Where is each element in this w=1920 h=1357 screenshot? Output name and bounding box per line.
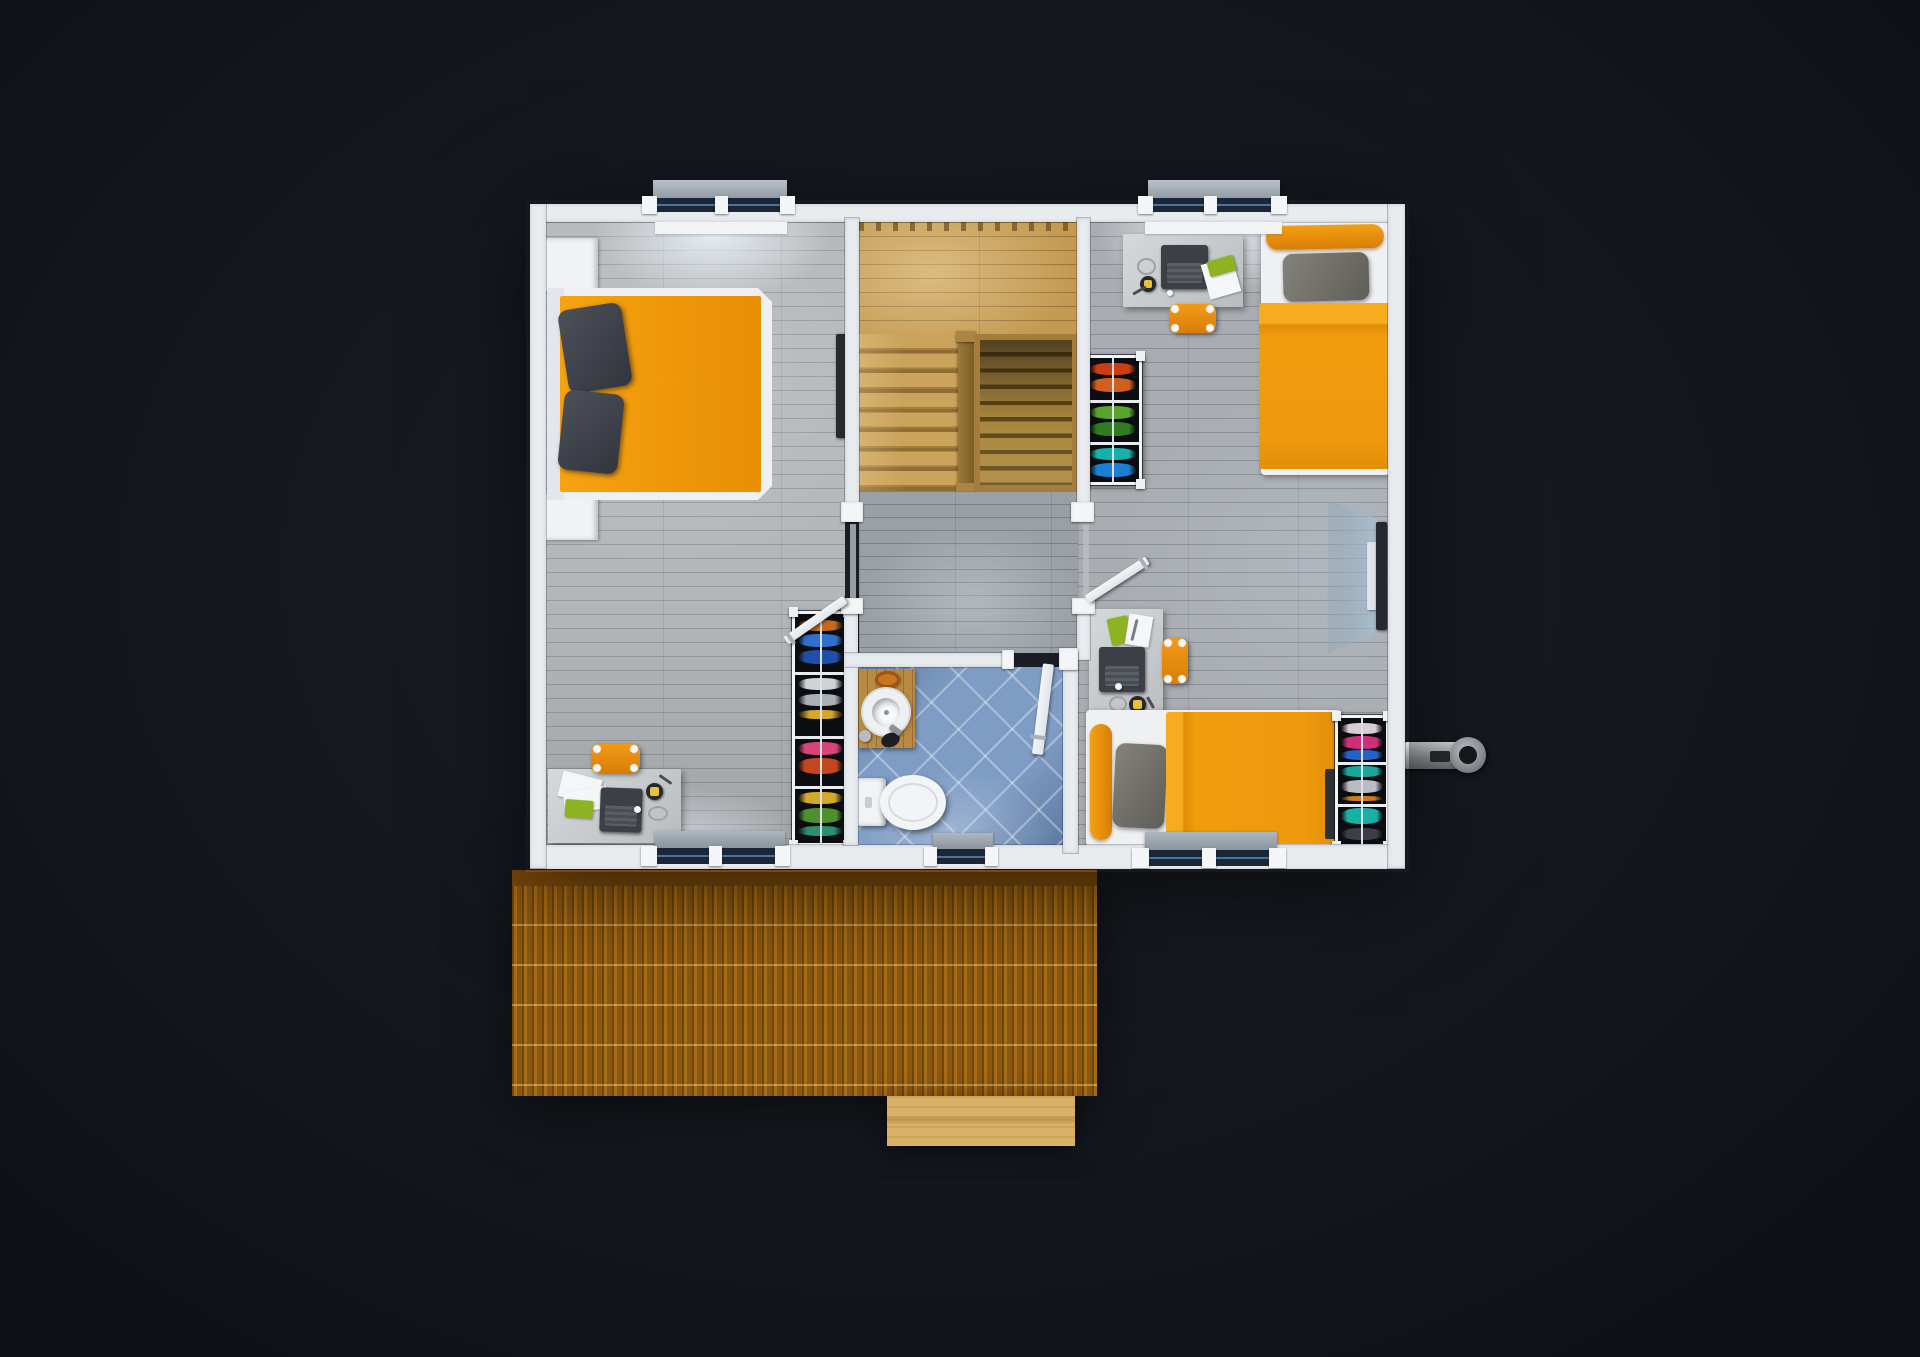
window-sill xyxy=(1145,222,1282,234)
wardrobe-shelf xyxy=(1338,762,1386,765)
hallway-floor xyxy=(859,491,1078,653)
green-notebook xyxy=(564,799,593,819)
stair-flight-right xyxy=(974,334,1078,491)
kids-single-bed-bottom xyxy=(1086,710,1341,846)
window-ledge xyxy=(933,833,993,849)
window-mullion xyxy=(924,847,937,866)
pencil-cup xyxy=(646,783,663,800)
toilet-bowl xyxy=(880,775,946,830)
wardrobe-shelf xyxy=(795,736,846,739)
kids-desk-bottom xyxy=(1089,609,1163,725)
master-double-bed xyxy=(547,288,772,500)
master-wardrobe xyxy=(792,611,849,846)
kids-single-bed-top xyxy=(1261,221,1390,475)
window-mullion xyxy=(780,196,795,214)
lotion-bottle xyxy=(859,730,871,742)
wall-left xyxy=(530,204,546,868)
wardrobe-foot xyxy=(1332,711,1341,721)
plate xyxy=(648,806,668,821)
nightstand-bottom xyxy=(545,494,598,540)
kids-desk-top xyxy=(1123,234,1243,307)
wardrobe-foot xyxy=(1136,351,1145,361)
kids-wardrobe-left xyxy=(1084,355,1142,485)
wall-master-bathroom xyxy=(844,612,858,845)
gray-pillow xyxy=(1282,252,1369,302)
wardrobe-foot xyxy=(1136,479,1145,489)
pillow-dark-top xyxy=(557,302,633,395)
doorway-threshold-right xyxy=(1083,524,1089,598)
wall-bathroom-right xyxy=(1063,653,1078,853)
window-sill xyxy=(655,222,787,234)
laptop xyxy=(1099,647,1145,692)
soap-dish xyxy=(875,671,900,688)
stair-landing xyxy=(859,222,1078,334)
kids-wardrobe-right xyxy=(1335,715,1389,847)
window-mullion xyxy=(985,847,998,866)
mouse xyxy=(1167,290,1173,296)
window-mullion xyxy=(1202,848,1216,868)
orange-duvet xyxy=(1259,303,1390,469)
chimney-slot xyxy=(1430,751,1450,762)
pillow-dark-bottom xyxy=(557,389,625,475)
window-mullion xyxy=(641,846,657,866)
orange-duvet xyxy=(1166,712,1338,844)
pen xyxy=(658,774,672,785)
gray-pillow xyxy=(1112,743,1168,830)
render-canvas xyxy=(0,0,1920,1357)
wall-cap xyxy=(1002,650,1014,669)
doorway-threshold-left xyxy=(850,524,856,598)
entry-step xyxy=(887,1096,1075,1146)
mouse xyxy=(1115,683,1122,690)
vessel-sink xyxy=(863,689,909,735)
laptop-keyboard xyxy=(1167,263,1203,282)
wall-cap xyxy=(1071,502,1094,522)
wall-stub-kids xyxy=(1077,608,1090,660)
wardrobe-foot xyxy=(789,607,798,617)
flush-button xyxy=(865,797,872,808)
stair-railing xyxy=(958,334,974,491)
wardrobe-shelf xyxy=(1087,400,1139,403)
nightstand-top xyxy=(545,238,598,292)
laptop-keyboard xyxy=(1105,666,1140,686)
window-mullion xyxy=(715,196,728,214)
wardrobe-rail xyxy=(1361,718,1363,844)
window-mullion xyxy=(1204,196,1217,214)
sticky-note xyxy=(650,787,658,795)
window-mullion xyxy=(775,846,790,866)
window-mullion xyxy=(642,196,657,214)
pen xyxy=(1146,696,1155,709)
kids-chair-bottom xyxy=(1162,638,1188,684)
pergola-deck-roof xyxy=(512,870,1097,1096)
stair-flight-left xyxy=(859,334,958,491)
laptop-keyboard xyxy=(604,806,637,826)
window-mullion xyxy=(1132,848,1149,868)
wardrobe-rail xyxy=(1112,358,1114,482)
desk-ring xyxy=(1137,258,1156,275)
wardrobe-shelf xyxy=(1338,804,1386,807)
window-mullion xyxy=(1271,196,1287,214)
wall-stairwell-left xyxy=(845,218,859,508)
wardrobe-shelf xyxy=(795,672,846,675)
wardrobe-shelf xyxy=(795,786,846,789)
paper-sheet xyxy=(1125,613,1154,647)
sticky-note xyxy=(1133,700,1141,708)
wall-cap xyxy=(1059,648,1078,670)
window-mullion xyxy=(1269,848,1286,868)
chimney-cap xyxy=(1450,737,1486,773)
wall-bathroom-top xyxy=(844,653,1007,667)
bed-headboard-roll xyxy=(1090,724,1112,840)
wardrobe-shelf xyxy=(1087,442,1139,445)
bed-headboard-roll xyxy=(1266,224,1384,250)
kids-chair-top xyxy=(1169,304,1216,333)
wall-stairwell-right xyxy=(1077,218,1090,508)
window-mullion xyxy=(709,846,722,866)
window-mullion xyxy=(1138,196,1153,214)
kids-tv xyxy=(1376,522,1387,630)
wardrobe-rail xyxy=(820,614,822,843)
wall-cap xyxy=(841,502,863,522)
mouse xyxy=(634,806,641,813)
master-desk-chair xyxy=(591,744,640,773)
wall-right xyxy=(1388,204,1405,868)
